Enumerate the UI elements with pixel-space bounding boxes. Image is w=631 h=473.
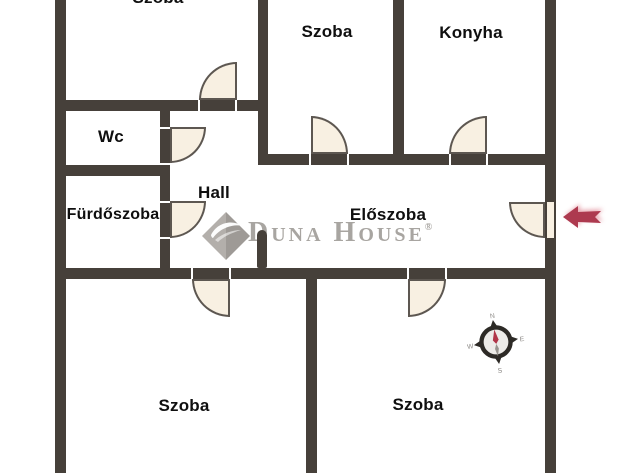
opening-notch [191,268,193,279]
door-arc-szoba-bottom-left [192,279,230,317]
opening-notch [309,154,311,165]
opening-notch [198,100,200,111]
door-arc-konyha [449,116,487,154]
room-label-wc: Wc [98,127,124,147]
door-arc-wc [170,127,206,163]
door-arc-entrance [509,202,545,238]
door-leaf-entrance [545,200,556,240]
opening-notch [160,237,170,239]
wall-hall-left [160,111,170,268]
opening-notch [160,127,170,129]
wall-wc-furdoszoba-divider [55,165,170,176]
opening-notch [407,268,409,279]
wall-outer-right-top [545,0,556,200]
duna-house-logo-icon [201,211,251,261]
room-label-eloszoba: Előszoba [350,205,426,225]
opening-notch [229,268,231,279]
entrance-arrow-icon [562,204,602,230]
compass-south-label: S [497,367,503,375]
room-label-konyha: Konyha [439,23,503,43]
opening-notch [486,154,488,165]
compass-east-label: E [519,336,525,344]
compass-icon: N E S W [467,309,525,375]
opening-notch [235,100,237,111]
wall-outer-left [55,0,66,473]
opening-notch [347,154,349,165]
wall-hall-eloszoba-bottom [55,268,556,279]
room-label-furdoszoba: Fürdőszoba [67,206,160,224]
opening-notch [160,201,170,203]
room-label-szoba-top-left: Szoba [132,0,183,8]
wall-divider-szoba-konyha [393,0,404,165]
wall-stub-hall-eloszoba [257,230,267,268]
opening-notch [160,163,170,165]
opening-notch [449,154,451,165]
door-arc-szoba-top-middle [311,116,348,154]
compass-west-label: W [467,343,475,351]
wall-divider-top-rooms [258,0,268,165]
room-label-szoba-bottom-right: Szoba [392,395,443,415]
wall-divider-bottom-rooms [306,279,317,473]
wall-eloszoba-top [258,154,556,165]
room-label-szoba-top-middle: Szoba [301,22,352,42]
compass-north-label: N [490,313,496,321]
room-label-szoba-bottom-left: Szoba [158,396,209,416]
opening-notch [445,268,447,279]
door-arc-szoba-top-left [199,62,237,100]
room-label-hall: Hall [198,183,230,203]
door-arc-szoba-bottom-right [408,279,446,317]
floorplan: Duna House® Szoba Szoba Konyha Wc Fürdős… [0,0,631,473]
